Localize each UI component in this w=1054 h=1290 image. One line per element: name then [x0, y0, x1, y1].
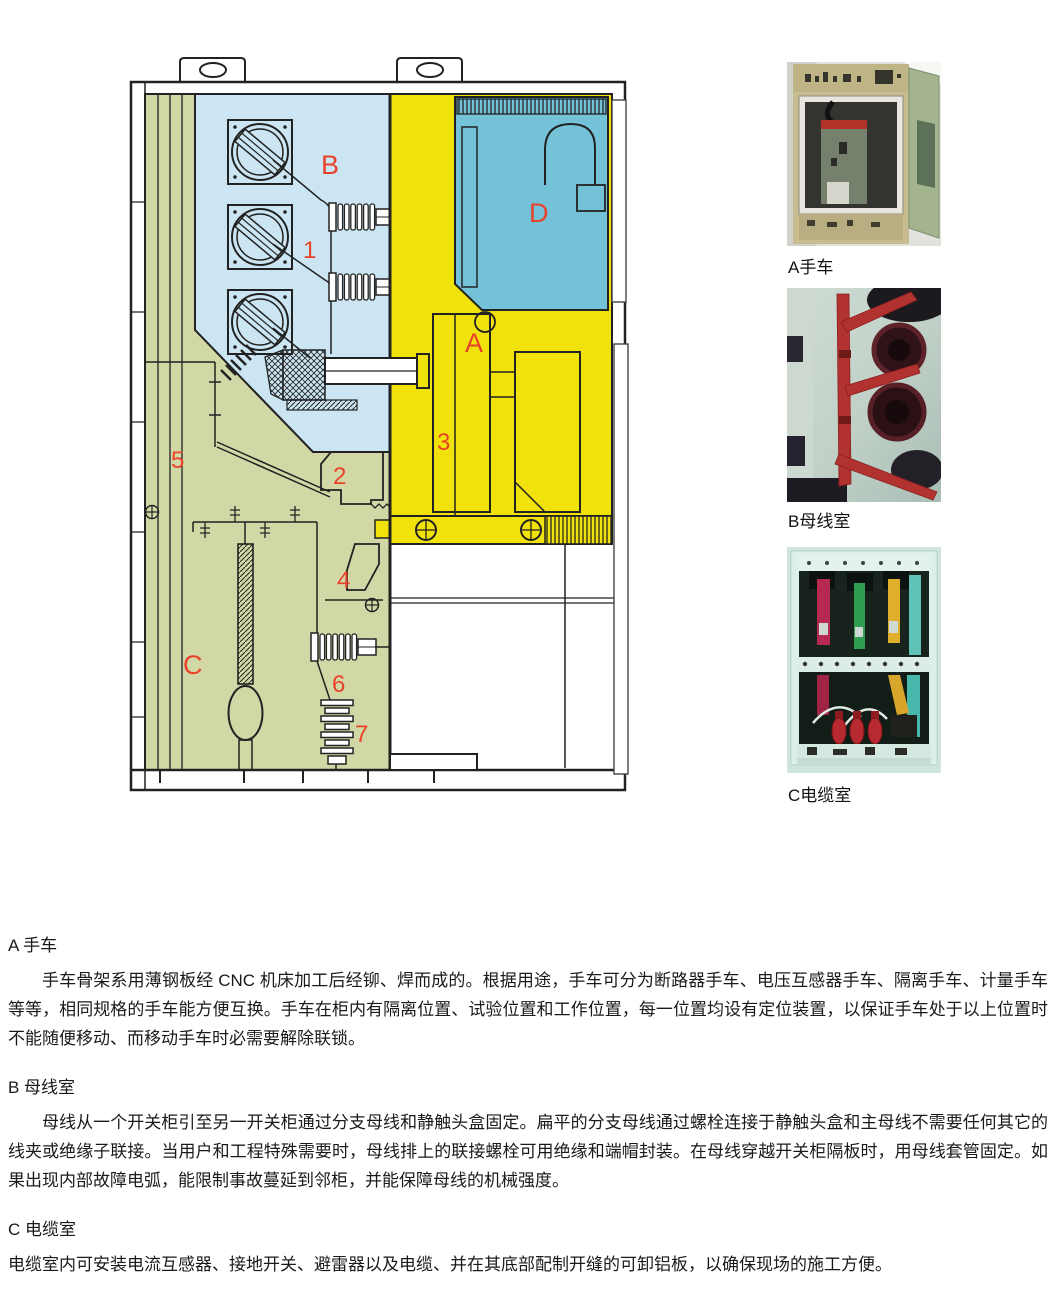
handcart-room-region [375, 94, 612, 544]
label-2: 2 [333, 463, 346, 490]
lifting-lugs [180, 58, 462, 84]
cable-strap-yellow [888, 579, 900, 643]
label-1: 1 [303, 237, 316, 264]
label-6: 6 [332, 671, 345, 698]
section-busbar-room: B 母线室 母线从一个开关柜引至另一开关柜通过分支母线和静触头盒固定。扁平的分支… [8, 1078, 1048, 1195]
rack-teeth [545, 516, 612, 544]
cable-strap-green [854, 583, 865, 649]
section-handcart: A 手车 手车骨架系用薄钢板经 CNC 机床加工后经铆、焊而成的。根据用途，手车… [8, 936, 1048, 1053]
rear-panels [612, 100, 628, 774]
handcart-wheel [416, 520, 436, 540]
busbar-bushing [228, 120, 292, 184]
switchgear-cross-section-diagram: B 1 D A 3 2 5 4 C 6 7 [125, 52, 635, 802]
section-heading: B 母线室 [8, 1078, 1048, 1098]
photo-handcart [787, 62, 941, 246]
cable-strap-red [817, 579, 830, 645]
photo-caption-handcart: A手车 [788, 253, 833, 278]
cross-section-svg: B 1 D A 3 2 5 4 C 6 7 [125, 52, 635, 802]
handcart-wheel [521, 520, 541, 540]
section-cable-room: C 电缆室 电缆室内可安装电流互感器、接地开关、避雷器以及电缆、并在其底部配制开… [8, 1220, 1048, 1279]
section-body: 电缆室内可安装电流互感器、接地开关、避雷器以及电缆、并在其底部配制开缝的可卸铝板… [8, 1250, 1048, 1279]
photo-caption-busbar-room: B母线室 [788, 507, 850, 532]
section-heading: C 电缆室 [8, 1220, 1048, 1240]
label-B: B [321, 150, 339, 180]
photo-cable-room [787, 547, 941, 773]
cable-termination [238, 544, 253, 684]
busbar-bushing [228, 205, 292, 269]
section-body: 母线从一个开关柜引至另一开关柜通过分支母线和静触头盒固定。扁平的分支母线通过螺栓… [8, 1108, 1048, 1195]
catalog-page: B 1 D A 3 2 5 4 C 6 7 [0, 0, 1054, 1290]
label-5: 5 [171, 447, 184, 474]
label-4: 4 [337, 567, 350, 594]
label-7: 7 [355, 721, 368, 748]
label-D: D [529, 198, 549, 228]
description-text: A 手车 手车骨架系用薄钢板经 CNC 机床加工后经铆、焊而成的。根据用途，手车… [8, 936, 1048, 1279]
photo-caption-cable-room: C电缆室 [788, 781, 851, 806]
cable-terminations [832, 711, 882, 744]
busbar-bushing [228, 290, 292, 354]
label-3: 3 [437, 429, 450, 456]
label-A: A [465, 328, 483, 358]
section-body: 手车骨架系用薄钢板经 CNC 机床加工后经铆、焊而成的。根据用途，手车可分为断路… [8, 966, 1048, 1053]
photo-busbar-room [787, 288, 941, 502]
section-heading: A 手车 [8, 936, 1048, 956]
label-C: C [183, 650, 203, 680]
